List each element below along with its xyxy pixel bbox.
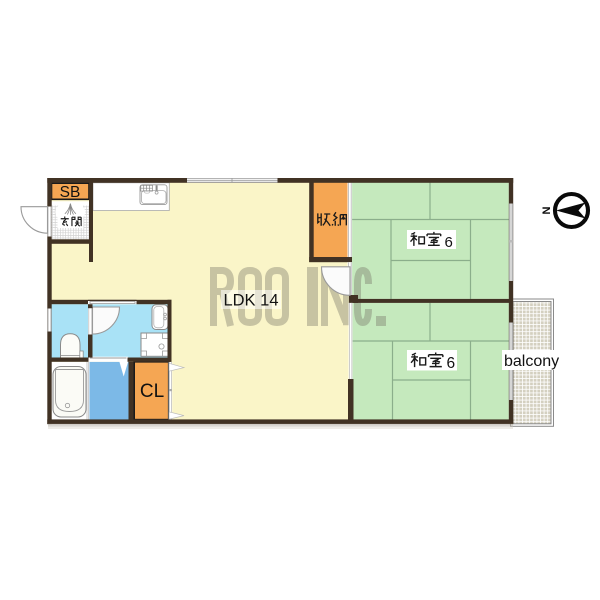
svg-text:CL: CL xyxy=(140,381,164,402)
svg-text:SB: SB xyxy=(60,184,81,201)
svg-text:balcony: balcony xyxy=(504,353,559,370)
svg-text:6: 6 xyxy=(445,234,453,251)
svg-text:N: N xyxy=(541,206,553,214)
svg-text:6: 6 xyxy=(447,355,456,372)
svg-text:LDK 14: LDK 14 xyxy=(223,292,278,310)
